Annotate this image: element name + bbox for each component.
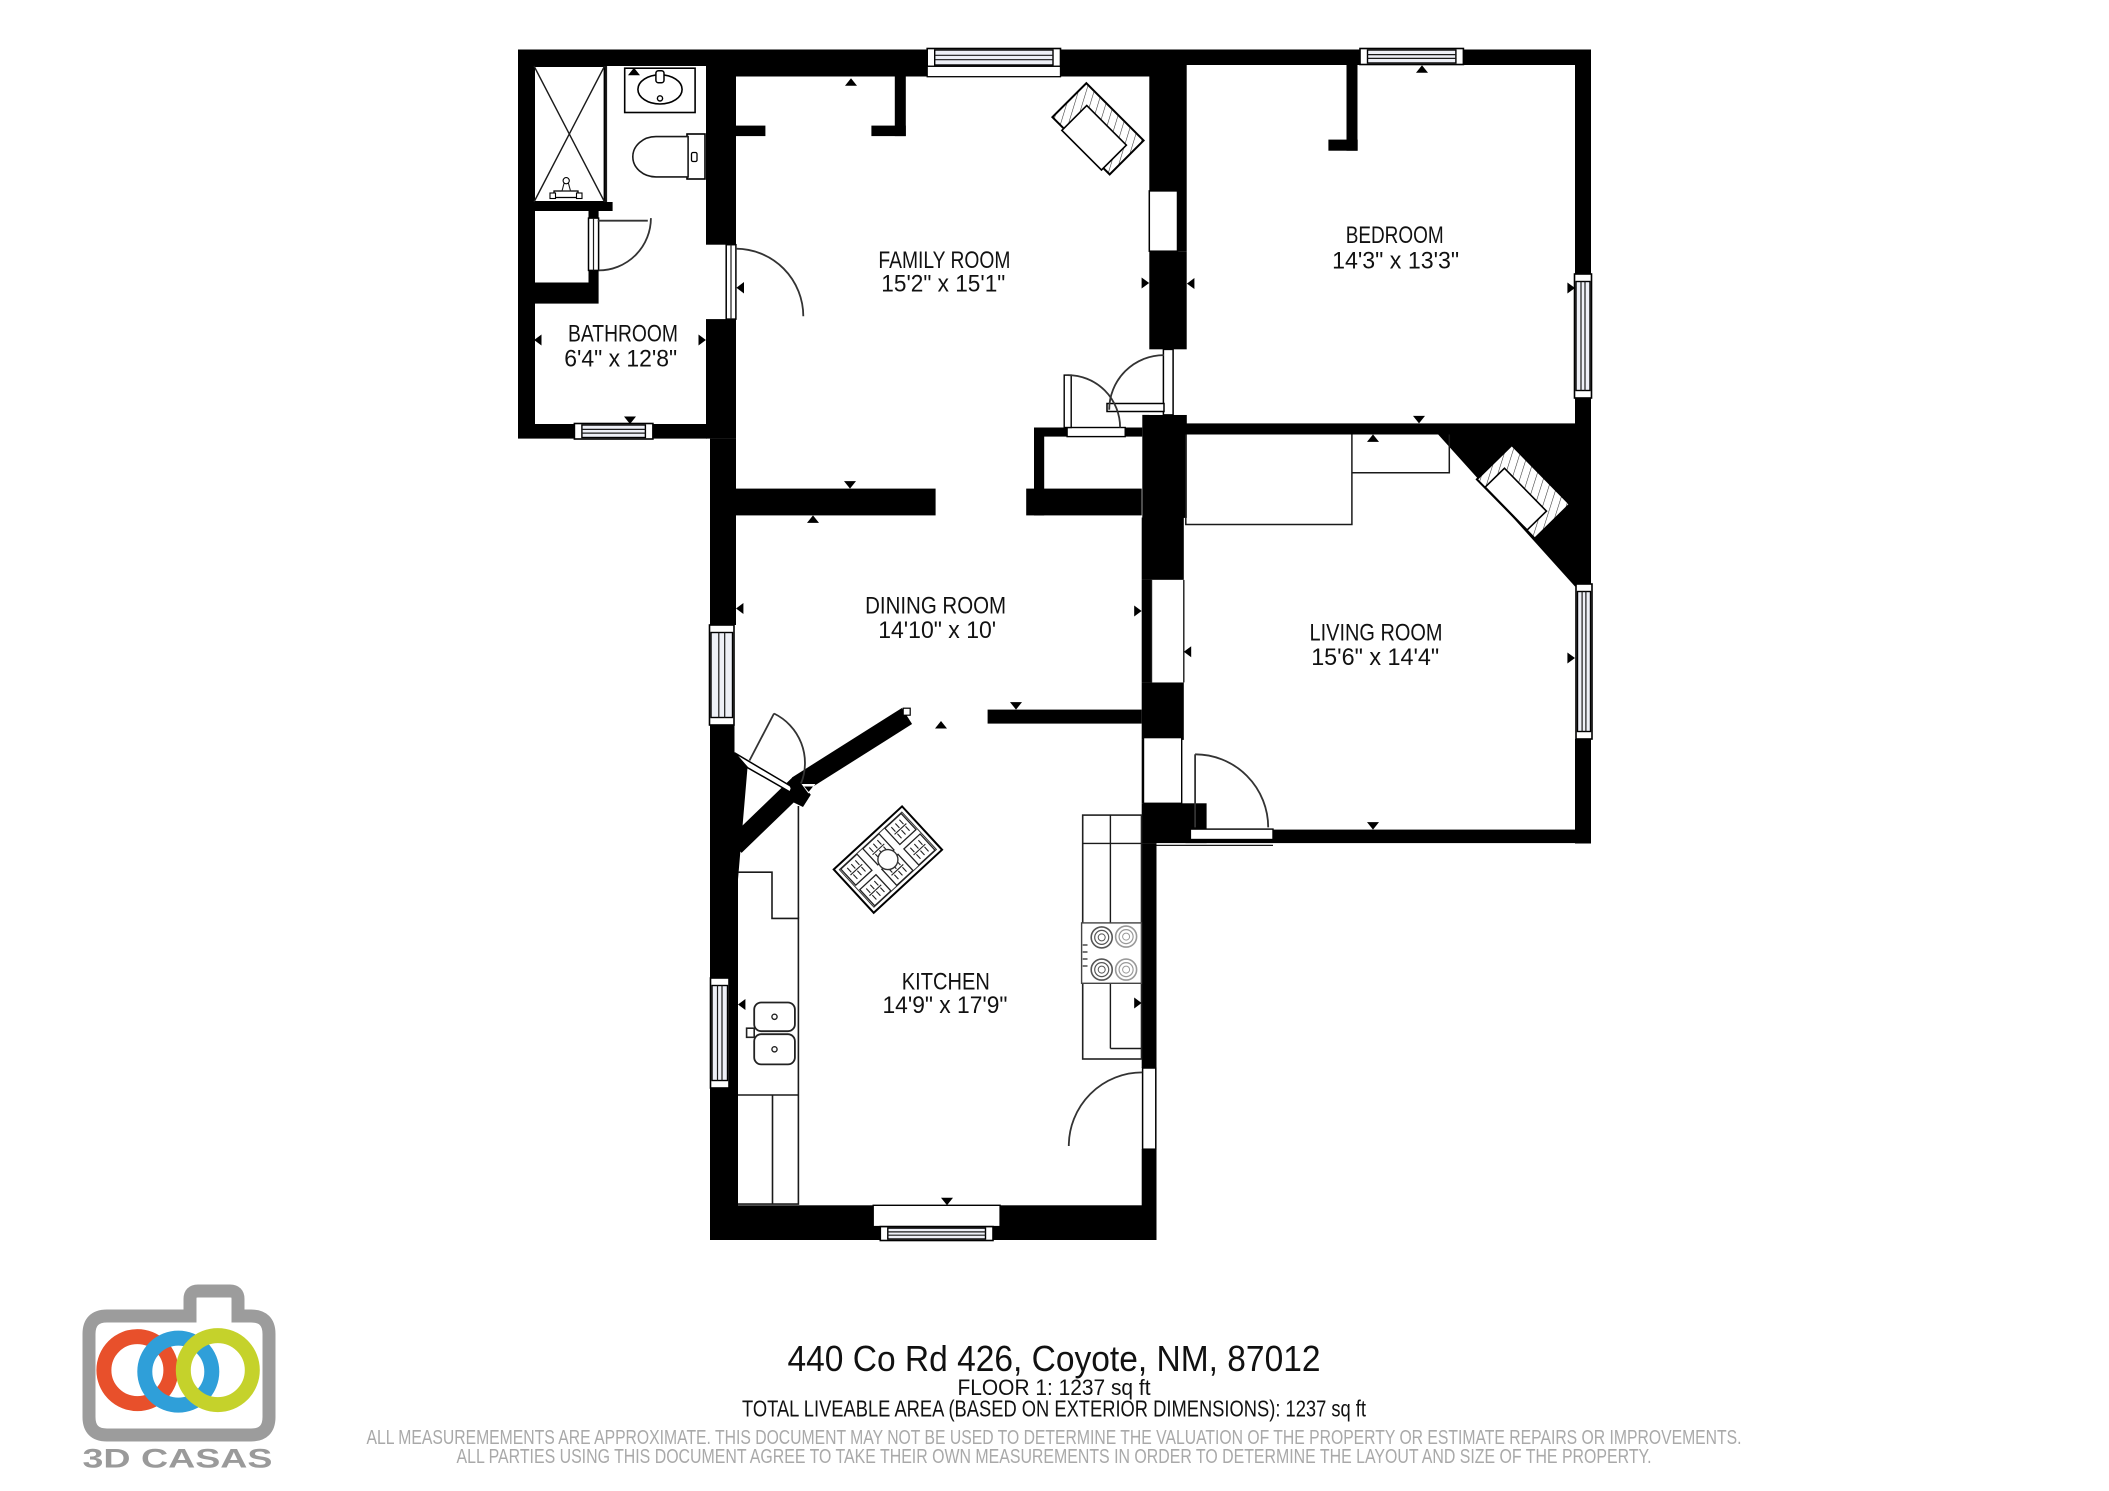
svg-text:BATHROOM: BATHROOM: [568, 321, 678, 348]
svg-text:TOTAL LIVEABLE AREA (BASED ON: TOTAL LIVEABLE AREA (BASED ON EXTERIOR D…: [742, 1396, 1366, 1422]
svg-text:14'10" x 10': 14'10" x 10': [878, 617, 996, 644]
svg-text:15'2" x 15'1": 15'2" x 15'1": [881, 271, 1005, 298]
svg-text:ALL PARTIES USING THIS DOCUMEN: ALL PARTIES USING THIS DOCUMENT AGREE TO…: [457, 1446, 1652, 1468]
svg-text:DINING ROOM: DINING ROOM: [865, 593, 1006, 620]
svg-text:14'9" x 17'9": 14'9" x 17'9": [883, 992, 1008, 1019]
svg-text:14'3" x 13'3": 14'3" x 13'3": [1332, 248, 1459, 275]
svg-text:3D CASAS: 3D CASAS: [83, 1444, 273, 1474]
svg-text:15'6" x 14'4": 15'6" x 14'4": [1311, 644, 1439, 671]
svg-text:BEDROOM: BEDROOM: [1346, 222, 1444, 249]
svg-text:440 Co Rd 426, Coyote, NM, 870: 440 Co Rd 426, Coyote, NM, 87012: [788, 1338, 1321, 1379]
svg-text:6'4" x 12'8": 6'4" x 12'8": [564, 346, 677, 373]
svg-text:LIVING ROOM: LIVING ROOM: [1310, 620, 1443, 647]
